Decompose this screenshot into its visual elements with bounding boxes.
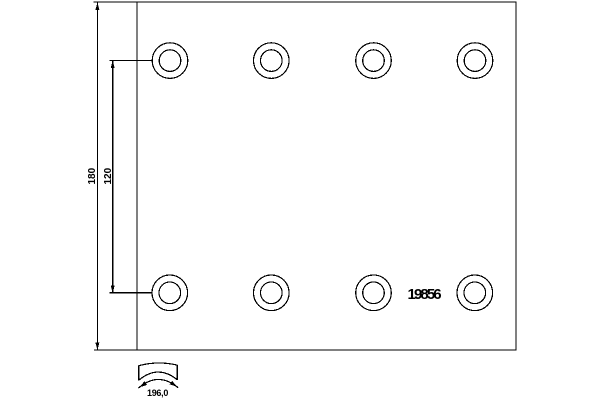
svg-text:19856: 19856 [408, 286, 442, 303]
svg-text:196,0: 196,0 [147, 388, 168, 398]
svg-text:120: 120 [103, 167, 114, 184]
svg-text:180: 180 [87, 167, 98, 184]
